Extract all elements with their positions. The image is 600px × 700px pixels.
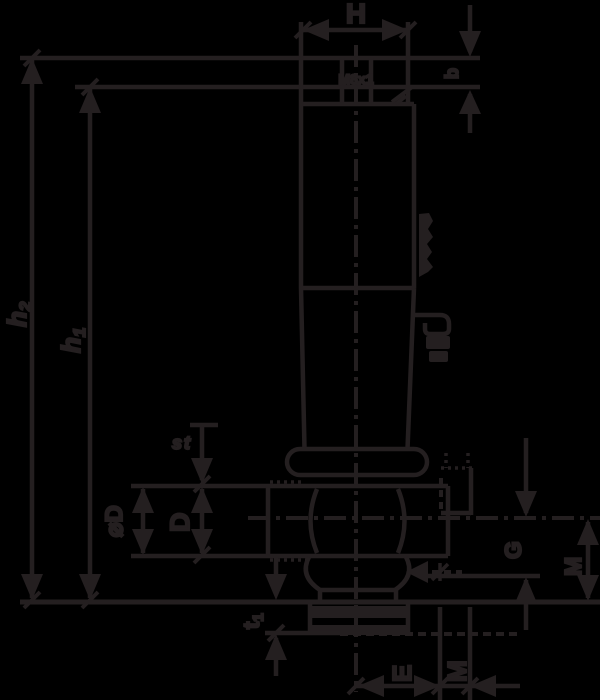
svg-text:E: E	[387, 665, 417, 682]
svg-text:G: G	[500, 541, 526, 559]
svg-text:H: H	[346, 0, 366, 29]
svg-text:D: D	[165, 513, 195, 533]
svg-text:st: st	[172, 433, 192, 453]
svg-text:M8x1: M8x1	[338, 71, 373, 87]
svg-text:⌀D: ⌀D	[101, 505, 128, 537]
svg-text:M: M	[560, 557, 586, 576]
svg-text:M: M	[442, 660, 472, 682]
svg-text:b: b	[442, 68, 462, 79]
